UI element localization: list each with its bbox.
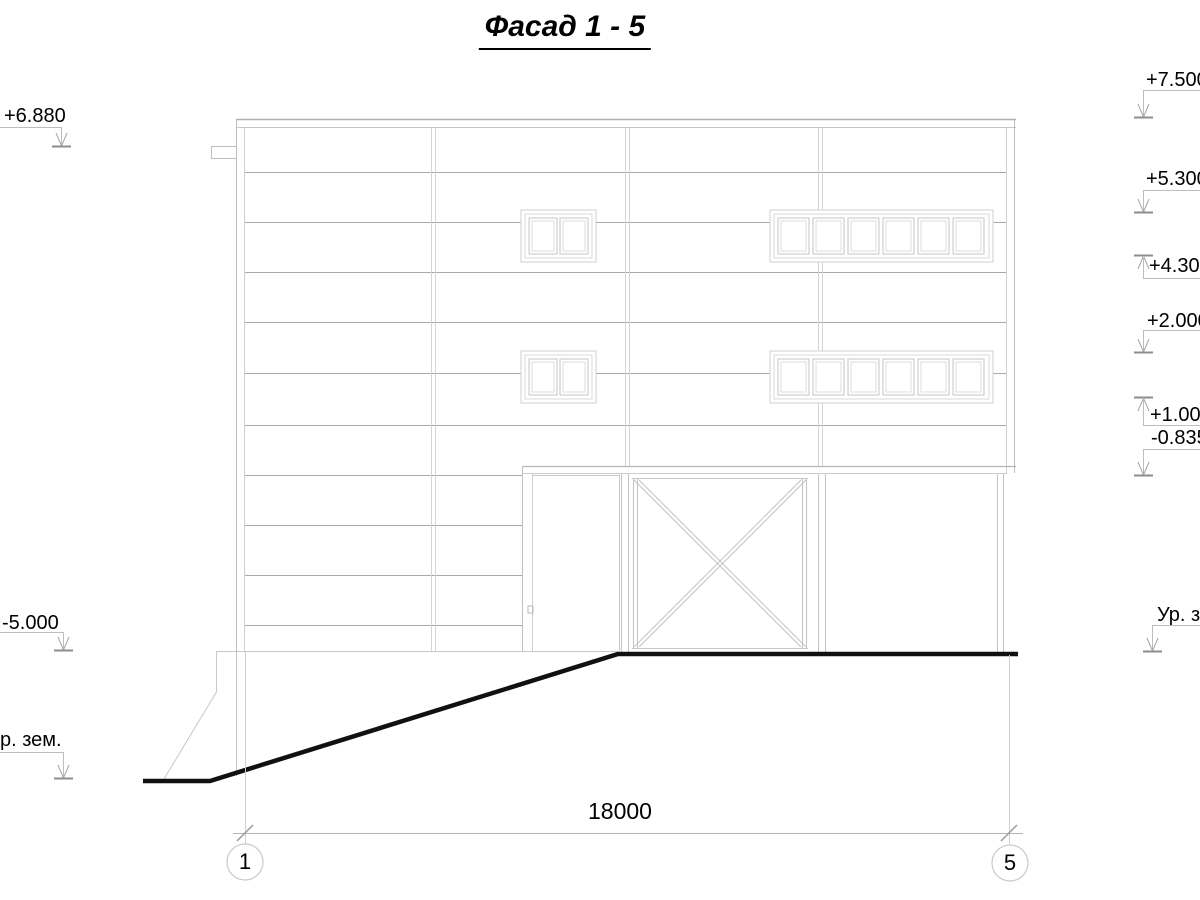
bay-divider-lines <box>432 128 823 651</box>
marker-right-5300 <box>1134 190 1200 213</box>
support-posts <box>622 474 1004 652</box>
elevation-label-2000: +2.000 <box>1147 311 1200 331</box>
drawing-title: Фасад 1 - 5 <box>479 12 651 50</box>
grid-axis-5-label: 5 <box>992 845 1028 881</box>
ground-line <box>143 654 1018 781</box>
marker-right-7500 <box>1134 90 1200 118</box>
elevation-label-4300: +4.300 <box>1149 256 1200 276</box>
grid-bubbles <box>227 844 1028 881</box>
elevation-label-minus5000: -5.000 <box>2 613 59 633</box>
dimension-value: 18000 <box>588 800 652 823</box>
window-small-lower <box>521 351 596 403</box>
foundation-lines <box>164 651 618 779</box>
marker-left-6880 <box>0 127 71 147</box>
ground-level-label-right: Ур. зем. <box>1157 605 1200 625</box>
ground-level-label-left: р. зем. <box>0 730 62 750</box>
elevation-label-1000: +1.000 <box>1150 405 1200 425</box>
window-strip-lower <box>770 351 993 403</box>
grid-axis-1-label: 1 <box>227 844 263 880</box>
elevation-marker-arrows <box>0 90 1200 779</box>
facade-linework <box>0 0 1200 900</box>
elevation-label-minus0835: -0.835 <box>1151 428 1200 448</box>
marker-right-0835 <box>1134 449 1200 476</box>
facade-drawing-canvas: Фасад 1 - 5 +6.880 -5.000 р. зем. +7.500… <box>0 0 1200 900</box>
elevation-label-7500: +7.500 <box>1146 70 1200 90</box>
elevation-label-6880: +6.880 <box>4 106 66 126</box>
roof-scupper <box>212 147 237 159</box>
window-small-upper <box>521 210 596 262</box>
marker-left-5000 <box>0 632 73 651</box>
window-strip-upper <box>770 210 993 262</box>
entry-door <box>528 475 620 651</box>
marker-right-2000 <box>1134 330 1200 353</box>
x-brace-gate <box>632 478 808 649</box>
marker-right-ground <box>1143 625 1200 652</box>
marker-left-ground <box>0 752 73 779</box>
elevation-label-5300: +5.300 <box>1146 169 1200 189</box>
